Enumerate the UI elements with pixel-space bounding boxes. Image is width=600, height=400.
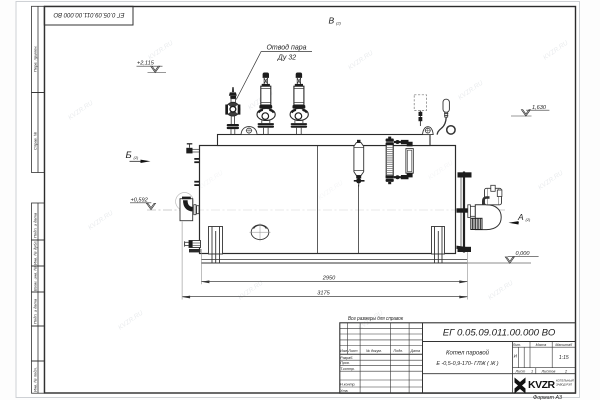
svg-text:А: А — [517, 212, 524, 222]
svg-text:Взам. инв. №: Взам. инв. № — [33, 266, 38, 291]
svg-text:Т.контр.: Т.контр. — [340, 367, 355, 371]
svg-text:0,000: 0,000 — [516, 251, 531, 257]
svg-text:Справ. №: Справ. № — [33, 131, 38, 150]
svg-text:ЕГ 0.05.09.011.00.000 ВО: ЕГ 0.05.09.011.00.000 ВО — [443, 328, 556, 339]
svg-text:Все размеры для справок: Все размеры для справок — [348, 316, 403, 322]
svg-text:Котел паровой: Котел паровой — [446, 350, 490, 357]
svg-text:Н.контр.: Н.контр. — [340, 383, 355, 387]
svg-text:ЕГ 0.05.09.011.00.000 ВО: ЕГ 0.05.09.011.00.000 ВО — [53, 11, 125, 18]
svg-text:Пров.: Пров. — [340, 361, 349, 365]
svg-text:KVZR: KVZR — [528, 379, 556, 391]
svg-text:Е -0,5-0,9-170- ГЛЖ ( Ж ): Е -0,5-0,9-170- ГЛЖ ( Ж ) — [436, 361, 498, 367]
svg-text:Подп. и дата: Подп. и дата — [33, 298, 38, 324]
svg-text:Подп.: Подп. — [394, 349, 404, 353]
svg-text:(2): (2) — [336, 21, 342, 26]
svg-text:Изм.: Изм. — [340, 349, 348, 353]
svg-text:Инв. № подл.: Инв. № подл. — [33, 367, 38, 392]
svg-text:Утв.: Утв. — [340, 389, 348, 393]
svg-text:1:15: 1:15 — [559, 355, 569, 361]
svg-text:Подп. и дата: Подп. и дата — [33, 212, 38, 238]
svg-text:Лит.: Лит. — [512, 343, 521, 347]
svg-text:Масса: Масса — [536, 343, 547, 347]
svg-text:Инв. № дубл.: Инв. № дубл. — [33, 240, 38, 265]
svg-text:Формат А3: Формат А3 — [533, 395, 562, 400]
svg-text:Лист: Лист — [515, 369, 526, 373]
svg-text:Разраб.: Разраб. — [340, 356, 353, 360]
svg-text:Б: Б — [126, 150, 132, 161]
svg-text:Отвод пара: Отвод пара — [266, 44, 306, 52]
svg-text:Дата: Дата — [410, 349, 420, 353]
svg-text:№ докум.: № докум. — [366, 349, 382, 353]
svg-text:+2,115: +2,115 — [137, 61, 155, 67]
svg-text:1: 1 — [531, 369, 533, 373]
svg-text:(2): (2) — [134, 155, 140, 160]
svg-text:Масштаб: Масштаб — [555, 343, 573, 347]
svg-text:Ду 32: Ду 32 — [277, 55, 296, 62]
svg-text:Лист: Лист — [347, 349, 357, 353]
svg-text:3175: 3175 — [317, 291, 330, 297]
svg-text:Листов: Листов — [541, 369, 556, 373]
svg-text:В: В — [329, 16, 335, 26]
svg-text:2950: 2950 — [322, 276, 336, 282]
svg-text:ЗАВОД РЭП: ЗАВОД РЭП — [556, 383, 573, 387]
svg-text:(2): (2) — [526, 217, 532, 222]
svg-text:Перв. примен.: Перв. примен. — [33, 45, 38, 72]
